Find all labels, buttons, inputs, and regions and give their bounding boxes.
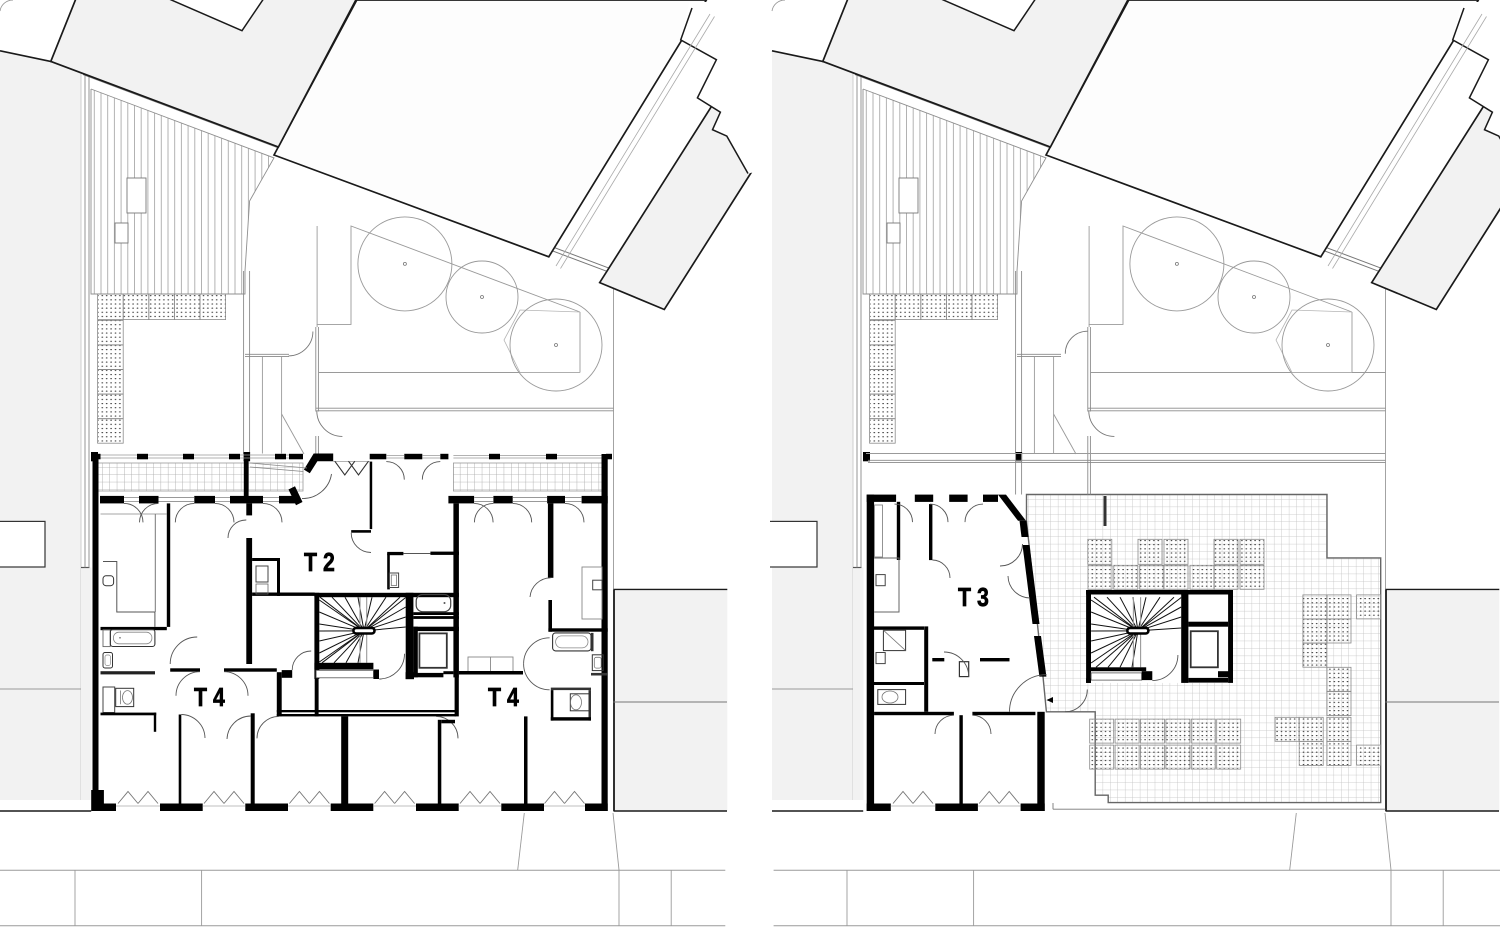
svg-text:T 3: T 3 <box>958 583 989 613</box>
svg-text:T 4: T 4 <box>194 683 225 713</box>
svg-text:T 2: T 2 <box>304 548 335 578</box>
svg-text:T 4: T 4 <box>488 683 519 713</box>
